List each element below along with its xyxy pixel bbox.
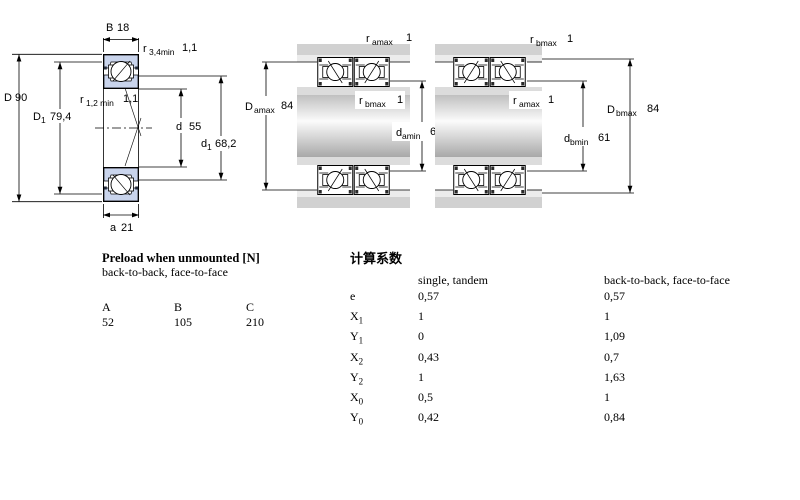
- bearing-unit: [354, 166, 389, 195]
- housing-band: [435, 197, 542, 208]
- preload-title: Preload when unmounted [N]: [102, 251, 342, 265]
- factor-symbol: Y0: [350, 410, 418, 430]
- shaft-shoulder: [435, 157, 542, 165]
- factors-col-paired: back-to-back, face-to-face: [604, 272, 790, 289]
- factor-single-value: 0,57: [418, 289, 604, 309]
- factors-title: 计算系数: [350, 251, 790, 266]
- dim-a-label: a: [110, 222, 117, 234]
- factor-symbol: Y2: [350, 370, 418, 390]
- preload-value: 105: [174, 315, 246, 330]
- dim-D1-label: D: [33, 111, 41, 123]
- factor-symbol: X2: [350, 350, 418, 370]
- svg-text:1,1: 1,1: [123, 93, 138, 105]
- bearing-unit: [490, 58, 525, 87]
- factor-paired-value: 1: [604, 390, 790, 410]
- svg-text:3,4min: 3,4min: [149, 47, 175, 57]
- paired-mounting-diagram-b: D bmax 84 d bmin 61 r bmax 1 r amax 1: [435, 33, 659, 208]
- dim-B-label: B: [106, 22, 113, 34]
- factor-symbol: X1: [350, 309, 418, 329]
- factor-symbol: Y1: [350, 329, 418, 349]
- housing-band: [297, 197, 410, 208]
- svg-text:amax: amax: [254, 105, 276, 115]
- svg-text:bmax: bmax: [536, 38, 558, 48]
- factor-paired-value: 0,57: [604, 289, 790, 309]
- svg-text:90: 90: [15, 92, 27, 104]
- svg-text:amax: amax: [372, 37, 394, 47]
- dim-B: [103, 38, 138, 52]
- dim-Damax-label: D: [245, 101, 253, 113]
- factors-col-single: single, tandem: [418, 272, 604, 289]
- factor-paired-value: 1,63: [604, 370, 790, 390]
- preload-subtitle: back-to-back, face-to-face: [102, 265, 342, 279]
- svg-text:1: 1: [41, 115, 46, 125]
- factor-paired-value: 1,09: [604, 329, 790, 349]
- bearing-section-bottom: [104, 168, 139, 202]
- svg-text:bmax: bmax: [616, 108, 638, 118]
- dim-r12-label: r: [80, 94, 84, 106]
- dim-r34-label: r: [143, 43, 147, 55]
- factor-paired-value: 1: [604, 309, 790, 329]
- dim-D-label: D: [4, 92, 12, 104]
- bearing-unit: [454, 58, 489, 87]
- svg-text:21: 21: [121, 222, 133, 234]
- preload-table: Preload when unmounted [N] back-to-back,…: [102, 251, 342, 330]
- shaft-shoulder: [297, 157, 410, 165]
- preload-col-header: C: [246, 300, 306, 315]
- factors-grid: single, tandem back-to-back, face-to-fac…: [350, 272, 790, 430]
- preload-grid: A B C 52 105 210: [102, 300, 342, 330]
- bearing-unit: [354, 58, 389, 87]
- dim-Dbmax: [542, 59, 634, 193]
- svg-text:84: 84: [281, 100, 293, 112]
- dim-D: [12, 54, 102, 201]
- svg-text:1,2 min: 1,2 min: [86, 98, 114, 108]
- bearing-diagrams: B 18 r 3,4min 1,1 D 90 D 1 79,4 r 1,2 mi…: [0, 0, 800, 245]
- preload-col-header: A: [102, 300, 174, 315]
- paired-mounting-diagram-a: D amax 84 d amin 61 r amax 1 r bmax 1: [242, 32, 448, 208]
- housing-band: [297, 44, 410, 55]
- svg-text:1: 1: [567, 33, 573, 45]
- dim-ramax-label: r: [366, 33, 370, 45]
- dim-rbmax-label: r: [359, 95, 363, 107]
- factor-symbol: X0: [350, 390, 418, 410]
- svg-text:bmax: bmax: [365, 99, 387, 109]
- svg-text:amin: amin: [402, 131, 421, 141]
- svg-text:68,2: 68,2: [215, 138, 236, 150]
- svg-text:84: 84: [647, 103, 659, 115]
- factor-single-value: 0,43: [418, 350, 604, 370]
- svg-text:1: 1: [548, 94, 554, 106]
- dim-d-label: d: [176, 121, 182, 133]
- dim-Damax: [262, 62, 297, 190]
- preload-col-header: B: [174, 300, 246, 315]
- svg-text:amax: amax: [519, 99, 541, 109]
- svg-text:55: 55: [189, 121, 201, 133]
- bearing-section-top: [104, 55, 139, 89]
- factor-single-value: 1: [418, 309, 604, 329]
- svg-text:bmin: bmin: [570, 137, 589, 147]
- factor-single-value: 0: [418, 329, 604, 349]
- svg-text:1: 1: [397, 94, 403, 106]
- housing-band: [435, 44, 542, 55]
- svg-text:1,1: 1,1: [182, 42, 197, 54]
- factor-single-value: 0,42: [418, 410, 604, 430]
- bearing-unit: [318, 166, 353, 195]
- preload-value: 52: [102, 315, 174, 330]
- factor-single-value: 1: [418, 370, 604, 390]
- svg-text:1: 1: [207, 142, 212, 152]
- svg-text:18: 18: [117, 22, 129, 34]
- dim-ramax-label: r: [513, 95, 517, 107]
- svg-text:1: 1: [406, 32, 412, 44]
- dim-Dbmax-label: D: [607, 104, 615, 116]
- catalog-page: B 18 r 3,4min 1,1 D 90 D 1 79,4 r 1,2 mi…: [0, 0, 800, 500]
- svg-text:61: 61: [598, 132, 610, 144]
- factor-paired-value: 0,7: [604, 350, 790, 370]
- dim-rbmax-top-label: r: [530, 34, 534, 46]
- svg-text:79,4: 79,4: [50, 111, 71, 123]
- factor-single-value: 0,5: [418, 390, 604, 410]
- calculation-factors-table: 计算系数 single, tandem back-to-back, face-t…: [350, 251, 790, 430]
- bearing-unit: [318, 58, 353, 87]
- dim-D1: [54, 62, 102, 194]
- dim-a: [103, 204, 138, 218]
- factor-symbol: e: [350, 289, 418, 309]
- single-bearing-diagram: B 18 r 3,4min 1,1 D 90 D 1 79,4 r 1,2 mi…: [4, 22, 239, 234]
- bearing-unit: [454, 166, 489, 195]
- preload-value: 210: [246, 315, 306, 330]
- factor-paired-value: 0,84: [604, 410, 790, 430]
- bearing-unit: [490, 166, 525, 195]
